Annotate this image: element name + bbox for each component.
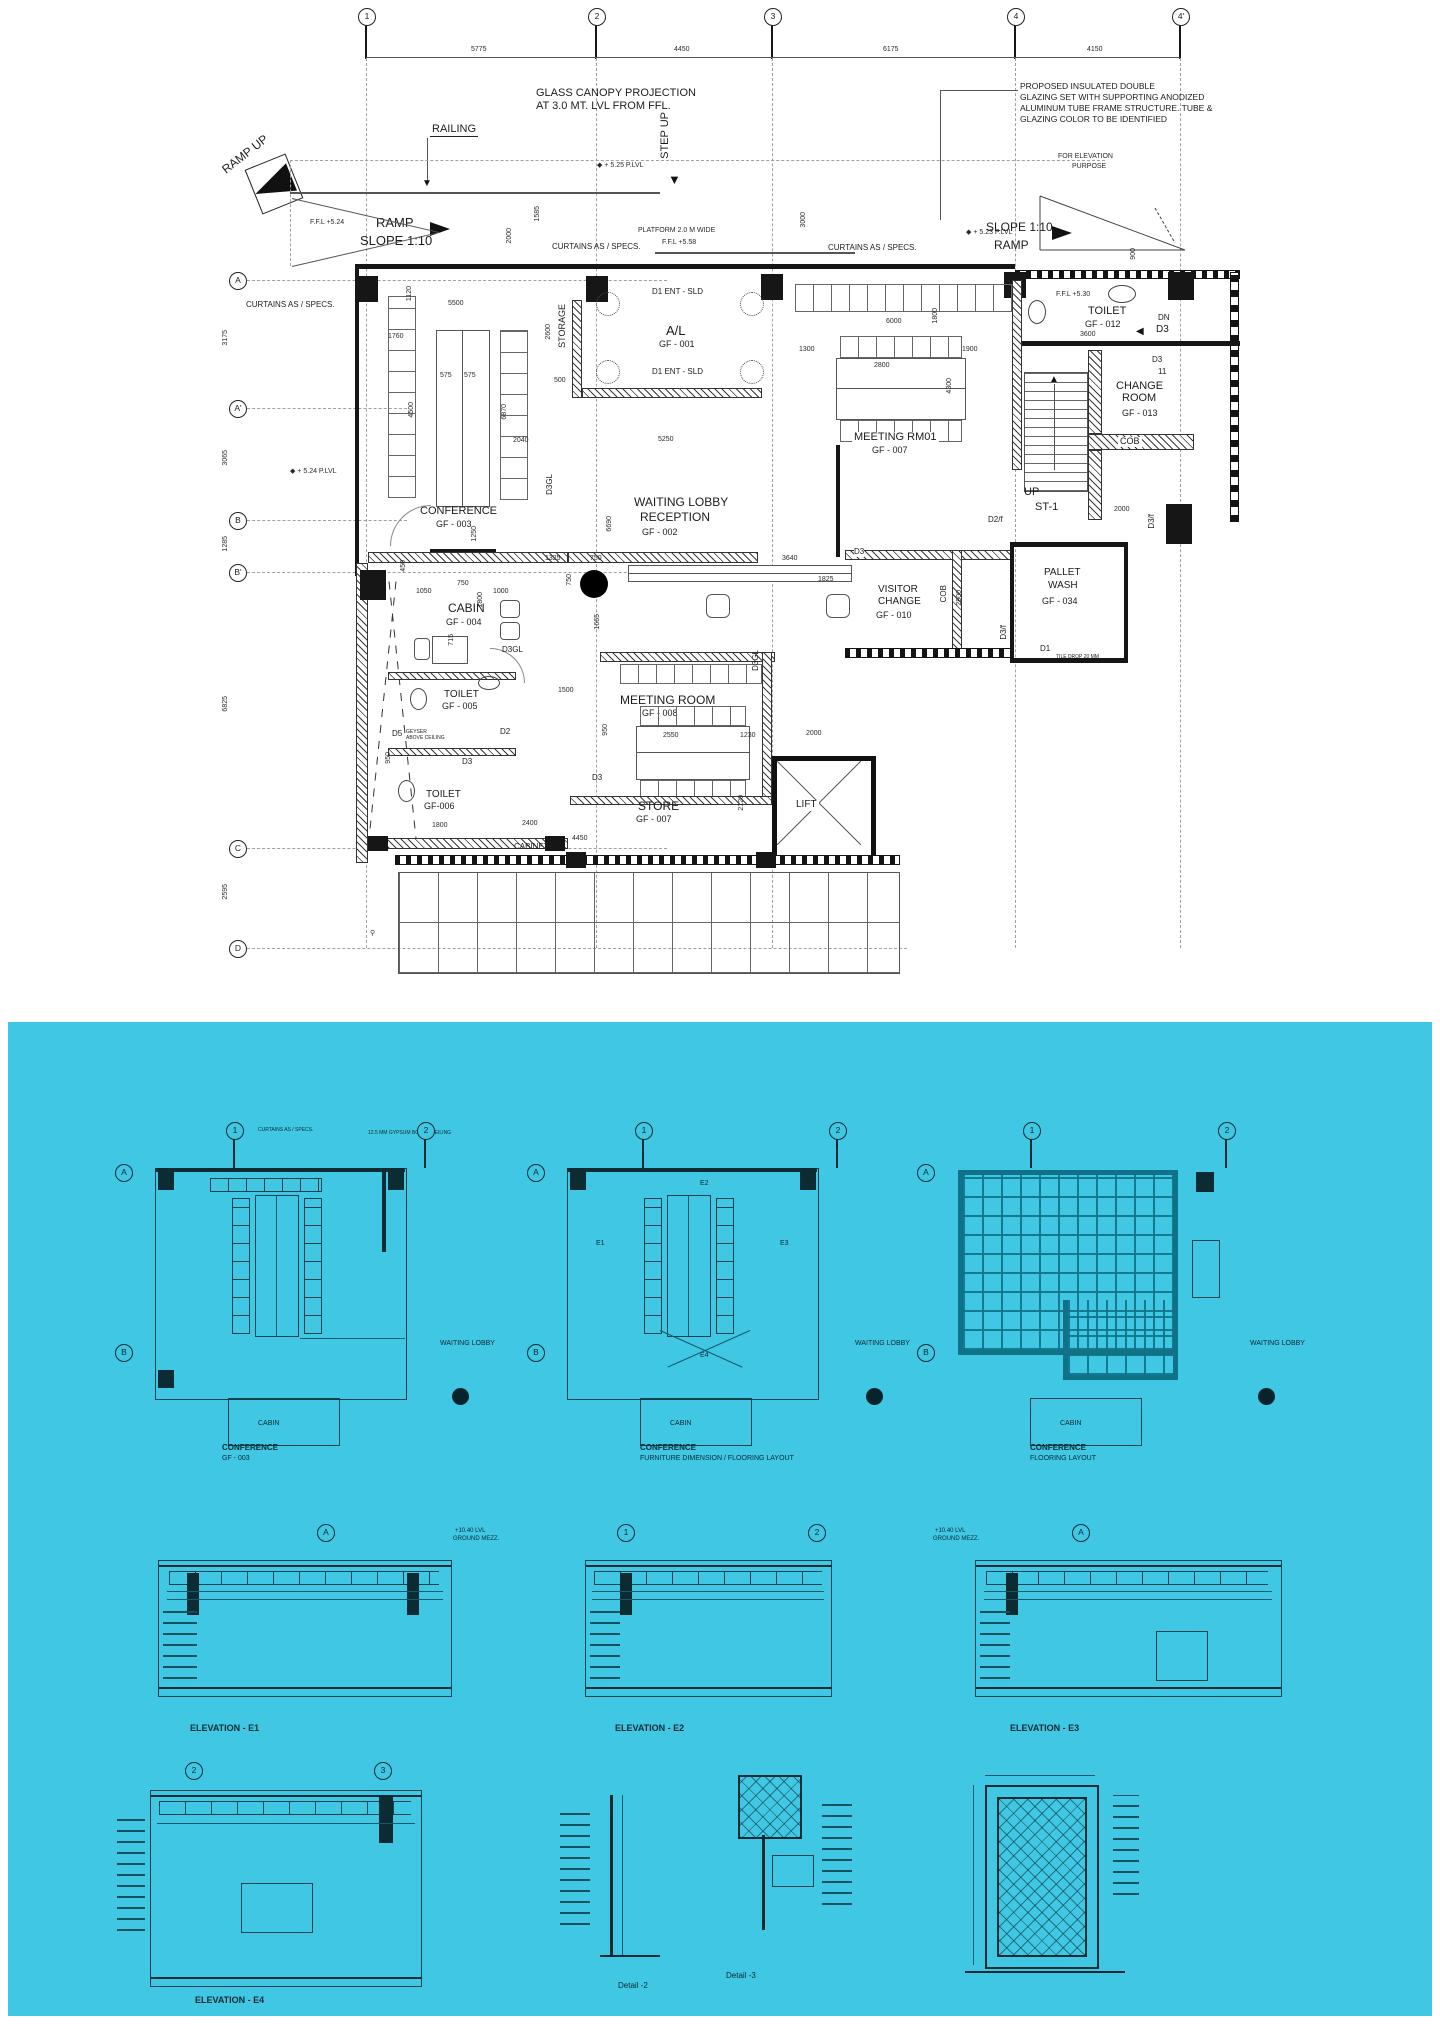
plan2-column (570, 1172, 586, 1190)
dim-label: 1900 (962, 346, 978, 354)
railing-label: RAILING (430, 124, 478, 137)
dim-label: 450 (400, 560, 408, 572)
door-d3-11-num: 11 (1158, 368, 1166, 377)
table-split (276, 1196, 277, 1336)
bubble-label: A (323, 1527, 329, 1537)
wall-toilet6 (388, 748, 516, 756)
door-d3gl-label: D3GL (502, 646, 523, 655)
line (984, 1591, 1272, 1592)
room-toilet5-id: GF - 005 (442, 702, 478, 712)
plvl-525-label: + 5.25 P.LVL (604, 162, 643, 169)
table-split (688, 1196, 689, 1336)
platform-edge (655, 252, 855, 254)
bubble-label: A (121, 1167, 127, 1177)
dim-label: 1300 (799, 346, 815, 354)
bubble-label: 2 (424, 1125, 429, 1135)
platform-note: PLATFORM 2.0 M WIDE (638, 227, 715, 235)
note-lines (560, 1805, 590, 1925)
plan3-stem (1225, 1138, 1227, 1168)
door-d2f-label: D2/f (988, 516, 1003, 525)
grid-bubble-2: 2 (588, 8, 606, 26)
ffl-524-label: F.F.L +5.24 (310, 219, 344, 227)
plan1-storage-wall (382, 1172, 386, 1252)
plan3-bubble-A: A (917, 1164, 935, 1182)
detail-3 (718, 1775, 868, 1940)
grid-bubble-D: D (229, 940, 247, 958)
floor-line (976, 1687, 1281, 1689)
room-al-id: GF - 001 (659, 340, 695, 350)
plan1-bubble-2: 2 (417, 1122, 435, 1140)
column (756, 852, 776, 868)
wall-cabin-left (356, 563, 368, 863)
room-toilet12-id: GF - 012 (1085, 320, 1121, 330)
line (592, 1591, 824, 1592)
plan1-stem (233, 1138, 235, 1168)
dim-label: 1760 (388, 333, 404, 341)
storage-label: STORAGE (558, 304, 568, 348)
plan3-bubble-B: B (917, 1344, 935, 1362)
grid-stem (595, 25, 597, 59)
dim-label: 1000 (493, 588, 509, 596)
beam (976, 1565, 1281, 1567)
dn-label: DN (1158, 314, 1170, 323)
bubble-label: A (1078, 1527, 1084, 1537)
dim-label: 950 (385, 752, 393, 764)
dim-label: 715 (448, 634, 456, 646)
plan1-column-dot (452, 1388, 469, 1405)
beam (159, 1565, 451, 1567)
dim-label: 4500 (408, 402, 416, 418)
plan2-marker-E2: E2 (700, 1180, 709, 1188)
dim-line (985, 1775, 1095, 1776)
e2-bubble-2: 2 (808, 1524, 826, 1542)
grid-bubble-4a: 4' (1172, 8, 1190, 26)
plan2-stem (836, 1138, 838, 1168)
plan2-bubble-1: 1 (635, 1122, 653, 1140)
up-label: UP (1024, 487, 1039, 499)
grid-bubble-A: A (229, 272, 247, 290)
grid-bubble-label: B (235, 515, 241, 525)
plan1-caption-1: CONFERENCE (222, 1444, 278, 1453)
plan3-stem (1030, 1138, 1032, 1168)
level-note: +10.40 LVL (935, 1528, 965, 1534)
ceiling-hangers (169, 1571, 439, 1585)
plan2-caption-1: CONFERENCE (640, 1444, 696, 1453)
grid-bubble-label: B' (234, 567, 241, 577)
grid-bubble-3: 3 (764, 8, 782, 26)
grid-line-h (247, 408, 407, 409)
tile-drop-note: TILE DROP 20 MM (1056, 655, 1099, 660)
st1-label: ST-1 (1035, 502, 1058, 514)
door-d5-label: D5 (392, 730, 402, 739)
glazing-note-2: GLAZING SET WITH SUPPORTING ANODIZED (1020, 93, 1204, 102)
note-lines (822, 1795, 852, 1905)
glazing-note-1: PROPOSED INSULATED DOUBLE (1020, 82, 1155, 91)
plan1-table (255, 1195, 299, 1337)
closet-strip (1088, 350, 1102, 434)
dim-label: 1665 (594, 614, 602, 630)
dim-label: 1250 (471, 526, 479, 542)
dim-label: 750 (590, 555, 602, 563)
plan3-bubble-1: 1 (1023, 1122, 1041, 1140)
desk-chair (706, 594, 730, 618)
wall-top (355, 264, 1015, 269)
wc-fixture (1028, 300, 1046, 324)
wall-storage (572, 300, 582, 398)
plant (596, 292, 620, 316)
room-pallet-name-1: PALLET (1044, 568, 1081, 579)
room-visitor-id: GF - 010 (876, 611, 912, 621)
dim-label: 5775 (468, 46, 490, 54)
step-up-arrow-icon: ▼ (668, 172, 681, 187)
room-al-name: A/L (666, 324, 686, 338)
plan2-column-dot (866, 1388, 883, 1405)
door-d1-ent-label: D1 ENT - SLD (652, 368, 703, 377)
ramp-right-label: RAMP (994, 239, 1029, 252)
floor-line (159, 1687, 451, 1689)
column (407, 1573, 419, 1615)
glazing-leader (940, 90, 941, 220)
line (157, 1823, 415, 1824)
plan3-sofa (1192, 1240, 1220, 1298)
conference-table (436, 330, 490, 507)
grid-bubble-C: C (229, 840, 247, 858)
table-split (462, 331, 463, 506)
dim-label: 750 (457, 580, 469, 588)
level-marker: ◆ + 5.24 P.LVL (290, 468, 337, 476)
grid-bubble-A1: A' (229, 400, 247, 418)
wall-cabin-top (368, 552, 568, 563)
door-d3-label: D3 (592, 774, 602, 783)
plan3-cabin-label: CABIN (1060, 1420, 1081, 1428)
chair-row (640, 706, 746, 726)
curtains-note-top: CURTAINS AS / SPECS. (552, 243, 641, 252)
door-d3f-label: D3/f (1148, 514, 1157, 529)
line (592, 1599, 824, 1600)
column (368, 836, 388, 851)
wc-fixture (398, 780, 415, 802)
plan2-bubble-B: B (527, 1344, 545, 1362)
grid-line-h (247, 520, 407, 521)
desk-chair (826, 594, 850, 618)
geyser-note-2: ABOVE CEILING (406, 736, 445, 741)
wc-fixture (410, 688, 427, 710)
bubble-label: A (923, 1167, 929, 1177)
elevation-e4 (150, 1790, 422, 1987)
dim-label: 1230 (740, 732, 756, 740)
room-conference-name: CONFERENCE (420, 506, 497, 518)
wall-visitor-bottom (845, 648, 1013, 658)
column (761, 274, 783, 300)
furniture (1156, 1631, 1208, 1681)
dim-label: 3600 (1080, 331, 1096, 339)
plan2-marker-E4: E4 (700, 1352, 709, 1360)
dim-line (973, 1785, 974, 1965)
wall-lobby-right (836, 445, 840, 557)
level-note: +10.40 LVL (455, 1528, 485, 1534)
level-note-2: GROUND MEZZ. (933, 1536, 979, 1542)
dim-label: 6690 (606, 516, 614, 532)
wall-top-right (1015, 270, 1240, 279)
grid-bubble-label: D (235, 943, 241, 953)
bubble-label: 2 (1225, 1125, 1230, 1135)
dim-label: 1285 (222, 536, 230, 552)
lift-shaft (772, 756, 876, 860)
cabinets-grid (398, 872, 900, 974)
dim-label: 2900 (956, 590, 964, 606)
room-store-name: STORE (638, 800, 679, 813)
room-meeting1-name: MEETING RM01 (852, 432, 939, 444)
plan2-chairs (716, 1198, 734, 1334)
door-detail (965, 1775, 1145, 1990)
bubble-label: B (533, 1347, 539, 1357)
grid-bubble-B1: B' (229, 564, 247, 582)
elevation-e3 (975, 1560, 1282, 1697)
plan3-waiting-lobby-label: WAITING LOBBY (1250, 1340, 1305, 1348)
e3-bubble-A: A (1072, 1524, 1090, 1542)
elevation-e2 (585, 1560, 832, 1697)
plan1-stem (424, 1138, 426, 1168)
wall-pallet-l (1010, 542, 1014, 662)
cabin-chair (500, 622, 520, 640)
room-lobby-name-2: RECEPTION (640, 511, 710, 524)
e4-bubble-2: 2 (185, 1762, 203, 1780)
elevation-e1-caption: ELEVATION - E1 (190, 1724, 259, 1734)
dim-label: 2800 (874, 362, 890, 370)
plan2-stem (642, 1138, 644, 1168)
grid-dimline (366, 57, 1180, 58)
bubble-label: 1 (642, 1125, 647, 1135)
room-cabin-id: GF - 004 (446, 618, 482, 628)
bubble-label: 3 (381, 1765, 386, 1775)
door-d3f-label: D3/f (1000, 625, 1009, 640)
dim-label: 1825 (818, 576, 834, 584)
plan1-bubble-B: B (115, 1344, 133, 1362)
bubble-label: B (121, 1347, 127, 1357)
note-lines (1113, 1795, 1139, 1895)
plan2-chairs (644, 1198, 662, 1334)
meeting8-table (636, 726, 750, 780)
dim-label: 1800 (477, 592, 485, 608)
plan2-wall-top (567, 1168, 817, 1172)
round-column (580, 570, 608, 598)
column (356, 276, 378, 302)
dim-label: 1585 (534, 206, 542, 222)
wall-pallet (1010, 542, 1128, 547)
dim-label: 500 (554, 377, 566, 385)
wall-meeting8-top (600, 652, 775, 662)
door-d1-ent-label: D1 ENT - SLD (652, 288, 703, 297)
column (360, 570, 386, 600)
column (566, 852, 586, 868)
plan1-wall-top (155, 1168, 405, 1172)
grid-bubble-label: 4 (1014, 11, 1019, 21)
plan1-chairs (304, 1198, 322, 1334)
wall-store-bottom (395, 855, 900, 865)
grid-bubble-4: 4 (1007, 8, 1025, 26)
room-meeting1-id: GF - 007 (872, 446, 908, 456)
tv-panel (241, 1883, 313, 1933)
detail-2 (560, 1795, 680, 1965)
door-d3gl-label: D3GL (752, 650, 761, 671)
dim-label: 2000 (1114, 506, 1130, 514)
plan2-caption-2: FURNITURE DIMENSION / FLOORING LAYOUT (640, 1455, 794, 1463)
canopy-dash-top (290, 160, 1105, 161)
door-d3gl-label: D3GL (546, 474, 555, 495)
wall-pallet-r (1124, 542, 1128, 662)
cabin-chair (500, 600, 520, 618)
up-arrow-icon: ▲ (1049, 374, 1059, 385)
dim-label: 1800 (432, 822, 448, 830)
room-lobby-id: GF - 002 (642, 528, 678, 538)
drawing-sheet: { "sheet": { "top_grid": {"b1":"1","b2":… (0, 0, 1440, 2024)
glazing-note-4: GLAZING COLOR TO BE IDENTIFIED (1020, 115, 1167, 124)
stud (762, 1835, 765, 1930)
column (620, 1573, 632, 1615)
wall-meeting8-right (762, 652, 772, 800)
floor-line (151, 1977, 421, 1979)
cabinets-label: CABINETS (514, 843, 554, 852)
ffl-558-label: F.F.L +5.58 (662, 239, 696, 247)
plan1-column (158, 1370, 174, 1388)
wall-meeting-right (1012, 280, 1022, 470)
dim-label: 4450 (671, 46, 693, 54)
lift-x (777, 761, 861, 845)
room-change-id: GF - 013 (1122, 409, 1158, 419)
plan1-caption-2: GF - 003 (222, 1455, 250, 1463)
elevation-e4-caption: ELEVATION - E4 (195, 1996, 264, 2006)
dim-label: 3175 (222, 330, 230, 346)
grid-stem (771, 25, 773, 59)
level-marker: ◆ + 5.25 P.LVL (597, 162, 644, 170)
door-d2-label: D2 (500, 728, 510, 737)
dim-label: 2000 (806, 730, 822, 738)
wall-visitor-top (845, 550, 1013, 560)
stud (610, 1795, 613, 1955)
room-visitor-name-1: VISITOR (878, 585, 918, 596)
plan2-bubble-2: 2 (829, 1122, 847, 1140)
beam (586, 1565, 831, 1567)
door-leaf (997, 1797, 1087, 1957)
floor-line (965, 1971, 1125, 1973)
dim-label: 2040 (513, 437, 529, 445)
level-note-2: GROUND MEZZ. (453, 1536, 499, 1542)
line (622, 1795, 623, 1955)
room-meeting8-name: MEETING ROOM (620, 694, 715, 707)
plan2-marker-E3: E3 (780, 1240, 789, 1248)
plan2-column (800, 1172, 816, 1190)
room-toilet6-name: TOILET (426, 790, 461, 801)
note-curtains: CURTAINS AS / SPECS. (258, 1128, 313, 1133)
curtains-note-left: CURTAINS AS / SPECS. (246, 301, 335, 310)
dim-label: 2400 (522, 820, 538, 828)
e4-bubble-3: 3 (374, 1762, 392, 1780)
wall-toilet12-bottom (1022, 341, 1240, 346)
dim-label: 2595 (222, 884, 230, 900)
grid-bubble-label: A (235, 275, 241, 285)
plant (740, 292, 764, 316)
door-arc (390, 505, 431, 546)
plan3-column-dot (1258, 1388, 1275, 1405)
detail-3-caption: Detail -3 (726, 1972, 756, 1981)
ceiling-hangers (159, 1801, 411, 1815)
dim-label: 1800 (932, 308, 940, 324)
left-arrow-icon: ◀ (1136, 326, 1144, 337)
plan1-step (300, 1338, 405, 1339)
plan1-bubble-1: 1 (226, 1122, 244, 1140)
plan1-bubble-A: A (115, 1164, 133, 1182)
basin-fixture (1108, 285, 1136, 303)
down-arrow-icon: ▼ (422, 178, 432, 189)
dim-label: 1050 (416, 588, 432, 596)
plan2-waiting-lobby-label: WAITING LOBBY (855, 1340, 910, 1348)
note-lines (117, 1811, 145, 1931)
step-up-label: STEP UP (660, 112, 672, 159)
plan1-column (388, 1172, 404, 1190)
grid-stem (365, 25, 367, 59)
stairs-arrow-line (1054, 384, 1055, 470)
dim-label: 5250 (658, 436, 674, 444)
dim-label: 3000 (800, 212, 808, 228)
dim-label: 6825 (222, 696, 230, 712)
room-visitor-name-2: CHANGE (878, 597, 921, 608)
grid-bubble-label: 3 (771, 11, 776, 21)
bubble-label: 1 (1030, 1125, 1035, 1135)
plant (740, 360, 764, 384)
grid-stem (1179, 25, 1181, 59)
dim-label: 3065 (222, 450, 230, 466)
slope-right-label: SLOPE 1:10 (986, 221, 1053, 234)
ceiling-hangers (986, 1571, 1268, 1585)
dim-label: 4450 (572, 835, 588, 843)
dim-label: 6175 (880, 46, 902, 54)
glass-canopy-note-1: GLASS CANOPY PROJECTION (536, 88, 696, 100)
bracket (772, 1855, 814, 1887)
wall-al-left (582, 388, 762, 398)
bubble-label: A (533, 1167, 539, 1177)
drain-mark: ⚲ (370, 930, 375, 938)
glazing-leader (940, 90, 1018, 91)
cabin-chair (414, 638, 430, 660)
door-d3-label: D3 (854, 548, 864, 557)
dim-label: 2600 (545, 324, 553, 340)
ramp-up-icon (245, 154, 304, 215)
grid-bubble-1: 1 (358, 8, 376, 26)
dim-label: 6000 (886, 318, 902, 326)
door-d1-label: D1 (1040, 645, 1050, 654)
line (984, 1599, 1272, 1600)
plan2-bubble-A: A (527, 1164, 545, 1182)
plan3-bubble-2: 2 (1218, 1122, 1236, 1140)
room-pallet-id: GF - 034 (1042, 597, 1078, 607)
e2-bubble-1: 1 (617, 1524, 635, 1542)
table-split (637, 752, 749, 753)
ffl-530-label: F.F.L +5.30 (1056, 291, 1090, 299)
glass-canopy-note-2: AT 3.0 MT. LVL FROM FFL. (536, 101, 671, 113)
plan2-marker-E1: E1 (596, 1240, 605, 1248)
plan3-column (1196, 1172, 1214, 1192)
dim-label: 4300 (946, 378, 954, 394)
glazing-note-3: ALUMINUM TUBE FRAME STRUCTURE. TUBE & (1020, 104, 1212, 113)
elevation-e1 (158, 1560, 452, 1697)
plan3-caption-1: CONFERENCE (1030, 1444, 1086, 1453)
room-change-name-2: ROOM (1122, 393, 1156, 405)
door-d3-11-label: D3 (1152, 356, 1162, 365)
grid-bubble-label: 1 (365, 11, 370, 21)
bubble-label: 2 (815, 1527, 820, 1537)
plan1-cabin-label: CABIN (258, 1420, 279, 1428)
plan2-cabin-label: CABIN (670, 1420, 691, 1428)
